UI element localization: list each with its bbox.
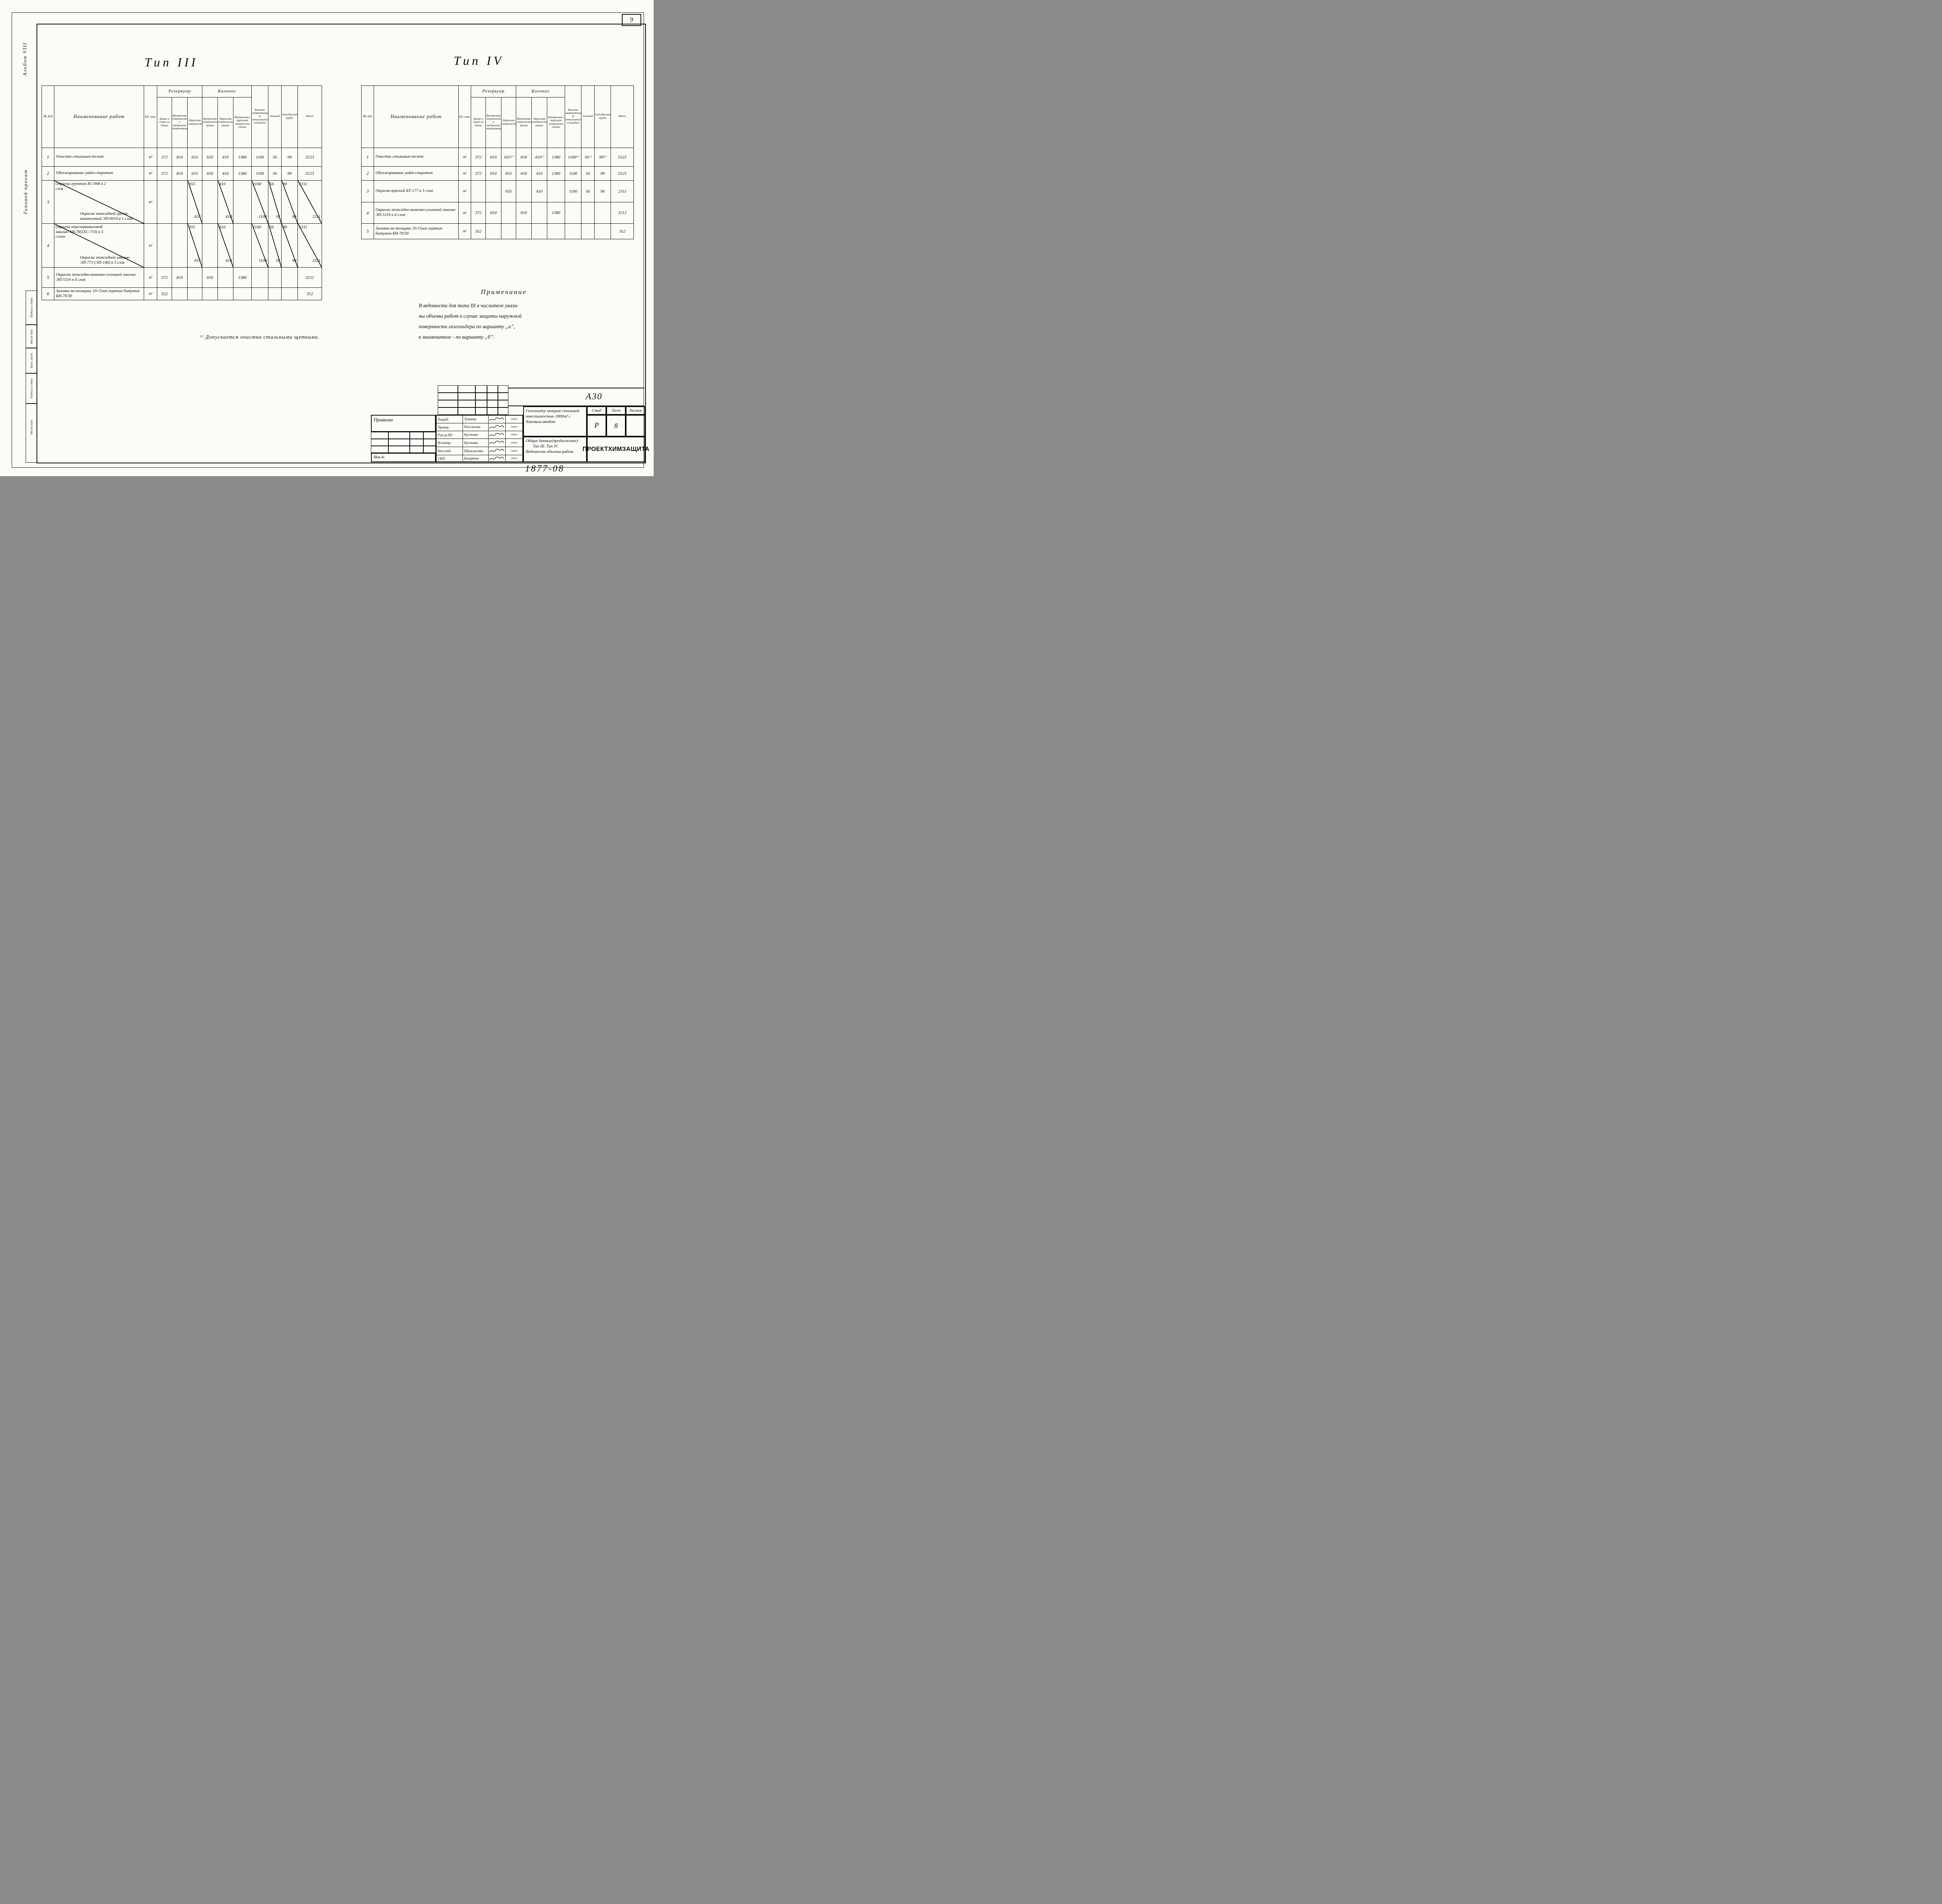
attach-grid-cell: [410, 432, 423, 439]
value-cell: 1380: [233, 148, 252, 167]
value-cell: 3212: [611, 202, 634, 224]
value-cell: [172, 181, 188, 224]
value-cell: 56: [581, 181, 595, 202]
denominator-value: 2311: [312, 258, 320, 263]
value-cell: [268, 268, 282, 288]
revision-cell: [498, 407, 508, 415]
signature-date: 30595: [506, 431, 522, 439]
value-cell: 655: [501, 167, 516, 181]
unit-cell: м²: [144, 167, 157, 181]
row-number-cell: 3: [362, 181, 374, 202]
type3-table-host: № п/пНаименование работЕд. изм.Резервуар…: [42, 85, 322, 300]
value-cell: 410410: [218, 181, 233, 224]
value-cell: 410: [532, 181, 547, 202]
signature-role: Разраб.: [437, 416, 463, 423]
table-row: 4Окраска эпоксидно-каменно-угольной эмал…: [362, 202, 634, 224]
value-cell: 655655: [188, 224, 202, 268]
column-header: Внутренняя и наружная поверхность стенки: [547, 97, 565, 148]
footnote: ¹⁾ Допускается очистка стальными щетками…: [200, 334, 320, 340]
revision-cell: [475, 385, 487, 393]
table-title-type4: Тип IV: [454, 54, 504, 68]
value-cell: 410¹⁾: [532, 148, 547, 167]
value-cell: 810: [486, 167, 501, 181]
table-row: 1Очистка стальным пескомм²372810655¹⁾650…: [362, 148, 634, 167]
value-cell: [188, 288, 202, 300]
table-row: 1Очистка стальным пескомм²37281065565041…: [42, 148, 322, 167]
row-number-cell: 4: [42, 224, 54, 268]
value-cell: [501, 224, 516, 239]
numerator-value: 90: [283, 182, 287, 186]
value-cell: 810: [486, 148, 501, 167]
column-header: Наименование работ: [54, 86, 144, 148]
column-header: Внешние направляющие (и металлоконструкц…: [252, 86, 268, 148]
document-number: 1877-08: [525, 464, 564, 474]
value-cell: 90: [282, 167, 298, 181]
value-cell: [252, 268, 268, 288]
table-row: 6Заливка на толщину 10-15мм горячим биту…: [42, 288, 322, 300]
column-header: Наружная поверхность крыши: [218, 97, 233, 148]
row-number-cell: 3: [42, 181, 54, 224]
attach-grid-cell: [371, 432, 388, 439]
value-cell: 5523: [298, 167, 322, 181]
column-header: Наружная поверхность: [188, 97, 202, 148]
attach-grid-cell: [388, 439, 410, 446]
sheet-title-line: Тип III. Тип IV.: [526, 444, 584, 449]
value-cell: [233, 288, 252, 300]
row-number-cell: 6: [42, 288, 54, 300]
value-cell: 410410: [218, 224, 233, 268]
column-header: Внутренняя поверхность и внутренние напр…: [172, 97, 188, 148]
table-title-type3: Тип III: [144, 55, 198, 70]
stamp-sheet-label: Лист: [606, 406, 626, 415]
unit-cell: м²: [144, 268, 157, 288]
stamp-organization: ПРОЕКТХИМЗАЩИТА: [587, 437, 645, 462]
work-name-cell: Обезжиривание уайт-спиритом: [374, 167, 459, 181]
type3-works-table: № п/пНаименование работЕд. изм.Резервуар…: [42, 85, 322, 300]
table-row: 3Окраска грунтом ХС-068 в 2 слояОкраска …: [42, 181, 322, 224]
signature: [489, 447, 506, 455]
assembly-code: А30: [586, 392, 602, 402]
stamp-sheets-label: Листов: [626, 406, 645, 415]
column-header: Ед. изм.: [459, 86, 471, 148]
margin-box-inv-podl: Инв.№ подл.: [26, 403, 37, 463]
revision-cell: [498, 400, 508, 407]
value-cell: 810: [172, 268, 188, 288]
revision-cell: [487, 400, 498, 407]
column-header: Ед. изм.: [144, 86, 157, 148]
revision-cell: [475, 400, 487, 407]
table-row: 5Окраска эпоксидно-каменно-угольной эмал…: [42, 268, 322, 288]
stamp-stage-value: Р: [587, 415, 606, 437]
row-number-cell: 2: [42, 167, 54, 181]
signature-date: 30595: [506, 416, 522, 423]
revision-cell: [438, 385, 458, 393]
column-header: Днище и опоры на днище: [471, 97, 486, 148]
numerator-value: 655: [189, 182, 195, 186]
revision-cell: [487, 407, 498, 415]
value-cell: 11001100: [252, 181, 268, 224]
signature: [489, 416, 506, 423]
value-cell: [268, 288, 282, 300]
revision-cell: [458, 400, 475, 407]
column-header: Резервуар: [471, 86, 516, 97]
unit-cell: м²: [144, 224, 157, 268]
numerator-value: 90: [283, 225, 287, 230]
column-header: Газосбросная труба: [595, 86, 611, 148]
value-cell: 5656: [268, 181, 282, 224]
numerator-value: 410: [219, 225, 226, 230]
stamp-project-title-cell: Газгольдер мокрый стальной вместимостью …: [523, 406, 587, 437]
value-cell: [516, 224, 532, 239]
signature-role: Н.контр.: [437, 439, 463, 447]
value-cell: 9090: [282, 224, 298, 268]
work-name-cell: Окраска эпоксидно-каменно-угольной эмаль…: [374, 202, 459, 224]
value-cell: 1100: [252, 148, 268, 167]
note-line: поверхности газгольдера по варианту „а”,: [419, 321, 628, 332]
denominator-value: 410: [226, 214, 232, 219]
unit-cell: м²: [459, 224, 471, 239]
work-name-cell: Очистка стальным песком: [374, 148, 459, 167]
value-cell: 650: [202, 167, 218, 181]
stamp-stage-label: Стад: [587, 406, 606, 415]
value-cell: 655: [501, 181, 516, 202]
value-cell: 352: [298, 288, 322, 300]
value-cell: 23112311: [298, 181, 322, 224]
value-cell: 90: [595, 181, 611, 202]
numerator-value: 1100: [253, 225, 261, 230]
value-cell: [565, 202, 581, 224]
denominator-value: 655: [195, 214, 201, 219]
signature-row: Разраб.Туваева30595: [437, 416, 522, 423]
table-row: 3Окраска краской БТ-177 в 3 слоям²655410…: [362, 181, 634, 202]
value-cell: [282, 288, 298, 300]
attach-grid-cell: [371, 446, 388, 453]
value-cell: 1100: [565, 167, 581, 181]
sheet-title-line: Общие данные(продолжение): [526, 439, 584, 444]
denominator-value: 1100: [259, 258, 267, 263]
revision-cell: [475, 407, 487, 415]
value-cell: [547, 181, 565, 202]
value-cell: 5523: [611, 148, 634, 167]
value-cell: [252, 288, 268, 300]
revision-cell: [475, 393, 487, 400]
sheet-title-line: Ведомости объемов работ.: [526, 449, 584, 455]
signature-role: Провер.: [437, 423, 463, 431]
column-header: Внутренняя поверхность и внутренние напр…: [486, 97, 501, 148]
value-cell: 1380: [233, 167, 252, 181]
row-number-cell: 5: [362, 224, 374, 239]
value-cell: [486, 224, 501, 239]
attach-grid-cell: [371, 439, 388, 446]
value-cell: 56: [581, 167, 595, 181]
signature-role: Рук.гр.ХО: [437, 431, 463, 439]
value-cell: 372: [157, 148, 172, 167]
value-cell: 5656: [268, 224, 282, 268]
work-name-cell: Окраска краской БТ-177 в 3 слоя: [374, 181, 459, 202]
column-header: Внутренняя поверхность крыши: [516, 97, 532, 148]
value-cell: 1380: [233, 268, 252, 288]
work-name-cell: Окраска грунтом ХС-068 в 2 слояОкраска э…: [54, 181, 144, 224]
revision-cell: [498, 385, 508, 393]
table-row: 2Обезжиривание уайт-спиритомм²3728106556…: [42, 167, 322, 181]
signature-name: Туваева: [463, 416, 489, 423]
stamp-signature-block: Разраб.Туваева30595Провер.Рогожина30595Р…: [436, 415, 523, 462]
numerator-value: Окраска грунтом ХС-068 в 2 слоя: [56, 182, 107, 191]
signature-row: Рук.гр.ХОКустова30595: [437, 431, 522, 439]
value-cell: 650: [202, 268, 218, 288]
denominator-value: 56: [276, 258, 280, 263]
value-cell: 410: [532, 167, 547, 181]
value-cell: 650: [516, 167, 532, 181]
value-cell: 372: [471, 167, 486, 181]
value-cell: [172, 288, 188, 300]
column-header: Наименование работ: [374, 86, 459, 148]
column-header: № п/п: [42, 86, 54, 148]
signature-date: 30595: [506, 439, 522, 447]
value-cell: 1100: [252, 167, 268, 181]
value-cell: [486, 181, 501, 202]
value-cell: [157, 224, 172, 268]
numerator-value: 655: [189, 225, 195, 230]
value-cell: [516, 181, 532, 202]
row-number-cell: 5: [42, 268, 54, 288]
value-cell: [202, 181, 218, 224]
denominator-value: 2311: [312, 214, 320, 219]
column-header: Внутренняя и наружная поверхность стенки: [233, 97, 252, 148]
signature-date: 30595: [506, 423, 522, 431]
work-name-cell: Заливка на толщину 10-15мм горячим битум…: [374, 224, 459, 239]
value-cell: 810: [172, 148, 188, 167]
column-header: Внутренняя поверхность крыши: [202, 97, 218, 148]
attach-grid-cell: [410, 439, 423, 446]
signature: [489, 455, 506, 462]
unit-cell: м²: [459, 181, 471, 202]
stamp-sheet-title-cell: Общие данные(продолжение) Тип III. Тип I…: [523, 437, 587, 462]
value-cell: [532, 202, 547, 224]
column-header: Газосбросная труба: [282, 86, 298, 148]
value-cell: 1100: [565, 181, 581, 202]
drawing-sheet: 9 Альбом VIII Типовой проект Подписи и д…: [0, 0, 654, 476]
value-cell: 352: [157, 288, 172, 300]
value-cell: 650: [202, 148, 218, 167]
value-cell: 9090: [282, 181, 298, 224]
work-name-cell: Обезжиривание уайт-спиритом: [54, 167, 144, 181]
signature-row: Провер.Рогожина30595: [437, 423, 522, 431]
value-cell: 650: [516, 148, 532, 167]
signature-name: Кустова: [463, 439, 489, 447]
revision-cell: [438, 393, 458, 400]
unit-cell: м²: [459, 167, 471, 181]
table-row: 2Обезжиривание уайт-спиритомм²3728106556…: [362, 167, 634, 181]
table-row: 5Заливка на толщину 10-15мм горячим биту…: [362, 224, 634, 239]
value-cell: [547, 224, 565, 239]
page-number-box: 9: [622, 14, 641, 26]
numerator-value: 1100: [253, 182, 261, 186]
numerator-value: Окраска перхлорвиниловой эмалью ХВ-785(Х…: [56, 225, 107, 240]
note-line: В ведомости для типа III в числителе ука…: [419, 300, 628, 311]
value-cell: 23112311: [298, 224, 322, 268]
revision-cell: [487, 393, 498, 400]
attach-grid-cell: [423, 439, 436, 446]
value-cell: 410: [218, 167, 233, 181]
signature-name: Рогожина: [463, 423, 489, 431]
value-cell: 1380: [547, 148, 565, 167]
row-number-cell: 1: [362, 148, 374, 167]
signature-row: Н.контр.Кустова30595: [437, 439, 522, 447]
value-cell: 372: [471, 148, 486, 167]
column-header: Колокол: [516, 86, 565, 97]
denominator-value: 1100: [259, 214, 267, 219]
unit-cell: м²: [144, 181, 157, 224]
signature-date: 30595: [506, 447, 522, 455]
note-line: ны объемы работ в случае защиты наружной: [419, 311, 628, 321]
type4-table-host: № п/пНаименование работЕд. изм.Резервуар…: [361, 85, 634, 239]
value-cell: [501, 202, 516, 224]
numerator-value: 2311: [299, 225, 307, 230]
revision-cell: [458, 407, 475, 415]
value-cell: 655: [188, 167, 202, 181]
revision-cell: [487, 385, 498, 393]
signature: [489, 423, 506, 431]
signature-name: Кустова: [463, 431, 489, 439]
unit-cell: м²: [459, 148, 471, 167]
column-header: Газоввод: [581, 86, 595, 148]
value-cell: 655: [188, 148, 202, 167]
numerator-value: 56: [270, 225, 274, 230]
value-cell: 410: [218, 148, 233, 167]
denominator-value: Окраска эпоксидной грунт-шпатлевкой ЭП-0…: [80, 212, 143, 221]
signature-name: Бачурина: [463, 455, 489, 462]
attach-grid-cell: [388, 432, 410, 439]
value-cell: 372: [471, 202, 486, 224]
value-cell: 1380: [547, 167, 565, 181]
column-header: № п/п: [362, 86, 374, 148]
margin-box-vzam-inv: Взам. инв.№: [26, 348, 37, 374]
value-cell: 90: [595, 167, 611, 181]
value-cell: 655¹⁾: [501, 148, 516, 167]
signature: [489, 439, 506, 447]
value-cell: 3212: [298, 268, 322, 288]
denominator-value: 90: [292, 214, 296, 219]
signature-row: Нач.отд.Шульженко30595: [437, 447, 522, 455]
value-cell: 11001100: [252, 224, 268, 268]
signature-role: Нач.отд.: [437, 447, 463, 455]
value-cell: 372: [157, 268, 172, 288]
column-header: Итого: [298, 86, 322, 148]
revision-cell: [498, 393, 508, 400]
margin-box-sign-date-1: Подписи и дата: [26, 291, 37, 325]
value-cell: 810: [486, 202, 501, 224]
unit-cell: м²: [459, 202, 471, 224]
signature: [489, 431, 506, 439]
revision-cell: [438, 400, 458, 407]
numerator-value: 2311: [299, 182, 307, 186]
signature-name: Шульженко: [463, 447, 489, 455]
stamp-sheet-value: 8: [606, 415, 626, 437]
value-cell: [581, 224, 595, 239]
value-cell: [595, 224, 611, 239]
column-header: Внешние направляющие (и металлоконструкц…: [565, 86, 581, 148]
revision-cell: [458, 385, 475, 393]
denominator-value: 655: [195, 258, 201, 263]
column-header: Резервуар: [157, 86, 202, 97]
value-cell: 810: [172, 167, 188, 181]
value-cell: [565, 224, 581, 239]
attach-grid-cell: [410, 446, 423, 453]
value-cell: 90¹⁾: [595, 148, 611, 167]
unit-cell: м²: [144, 148, 157, 167]
value-cell: [188, 268, 202, 288]
value-cell: 5523: [298, 148, 322, 167]
stamp-inv-cell: Инв.№: [371, 453, 436, 462]
value-cell: 655655: [188, 181, 202, 224]
value-cell: 1380: [547, 202, 565, 224]
value-cell: [172, 224, 188, 268]
note-block: Примечание В ведомости для типа III в чи…: [419, 287, 628, 342]
denominator-value: 56: [276, 214, 280, 219]
work-name-cell: Окраска эпоксидно-каменно-угольной эмаль…: [54, 268, 144, 288]
value-cell: 56¹⁾: [581, 148, 595, 167]
numerator-value: 410: [219, 182, 226, 186]
row-number-cell: 2: [362, 167, 374, 181]
value-cell: 1100¹⁾: [565, 148, 581, 167]
stamp-sheets-value: [626, 415, 645, 437]
value-cell: 56: [268, 167, 282, 181]
note-line: в знаменателе - по варианту „б”.: [419, 332, 628, 342]
row-number-cell: 4: [362, 202, 374, 224]
value-cell: [532, 224, 547, 239]
column-header: Газоввод: [268, 86, 282, 148]
revision-cell: [458, 393, 475, 400]
margin-box-inv-dupl: Инв.№ дубл.: [26, 324, 37, 348]
value-cell: 56: [268, 148, 282, 167]
value-cell: 650: [516, 202, 532, 224]
value-cell: [202, 224, 218, 268]
table-row: 4Окраска перхлорвиниловой эмалью ХВ-785(…: [42, 224, 322, 268]
value-cell: [595, 202, 611, 224]
column-header: Колокол: [202, 86, 252, 97]
column-header: Наружная поверхность: [501, 97, 516, 148]
column-header: Итого: [611, 86, 634, 148]
signature-date: 30595: [506, 455, 522, 462]
value-cell: [233, 181, 252, 224]
denominator-value: 90: [292, 258, 296, 263]
value-cell: [202, 288, 218, 300]
value-cell: 352: [471, 224, 486, 239]
row-number-cell: 1: [42, 148, 54, 167]
denominator-value: 410: [226, 258, 232, 263]
attach-grid-cell: [423, 432, 436, 439]
value-cell: [218, 268, 233, 288]
numerator-value: 56: [270, 182, 274, 186]
value-cell: [218, 288, 233, 300]
value-cell: [282, 268, 298, 288]
stamp-attach-cell: Привязан: [371, 415, 436, 432]
value-cell: 372: [157, 167, 172, 181]
value-cell: [233, 224, 252, 268]
revision-cell: [438, 407, 458, 415]
value-cell: [157, 181, 172, 224]
value-cell: 352: [611, 224, 634, 239]
a30-strip-line-top: [508, 388, 644, 388]
value-cell: 90: [282, 148, 298, 167]
column-header: Днище и опоры на днище: [157, 97, 172, 148]
value-cell: 2311: [611, 181, 634, 202]
margin-box-sign-date-2: Подписи и дата: [26, 373, 37, 404]
attach-grid-cell: [388, 446, 410, 453]
value-cell: [581, 202, 595, 224]
work-name-cell: Заливка на толщину 10-15мм горячим битум…: [54, 288, 144, 300]
